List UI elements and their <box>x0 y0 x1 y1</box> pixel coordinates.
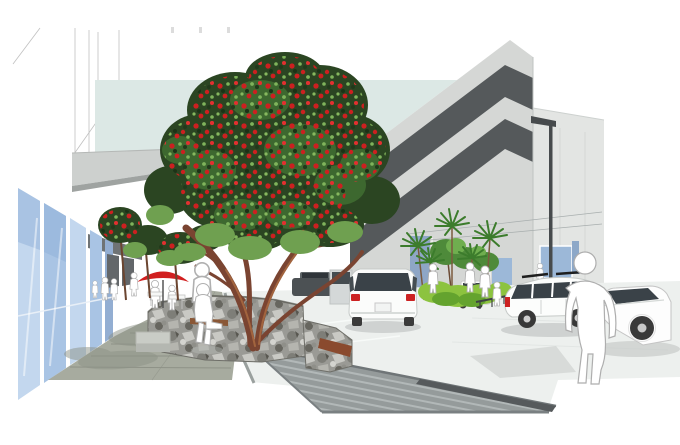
taillight <box>406 294 415 301</box>
license-plate <box>375 303 391 312</box>
glass-top-shade <box>44 203 66 262</box>
concrete-seat-block <box>136 332 170 344</box>
taillight <box>351 294 360 301</box>
rooftop-marks <box>171 27 230 33</box>
street-light-pole <box>549 121 553 303</box>
street-scene-rendering <box>0 0 680 445</box>
rendering-canvas <box>0 0 680 445</box>
rear-window <box>354 273 412 291</box>
car-white-wagon-rear <box>345 269 421 333</box>
glass-panel <box>70 218 86 365</box>
taillight <box>505 297 510 307</box>
concrete-seat-face <box>136 344 170 352</box>
